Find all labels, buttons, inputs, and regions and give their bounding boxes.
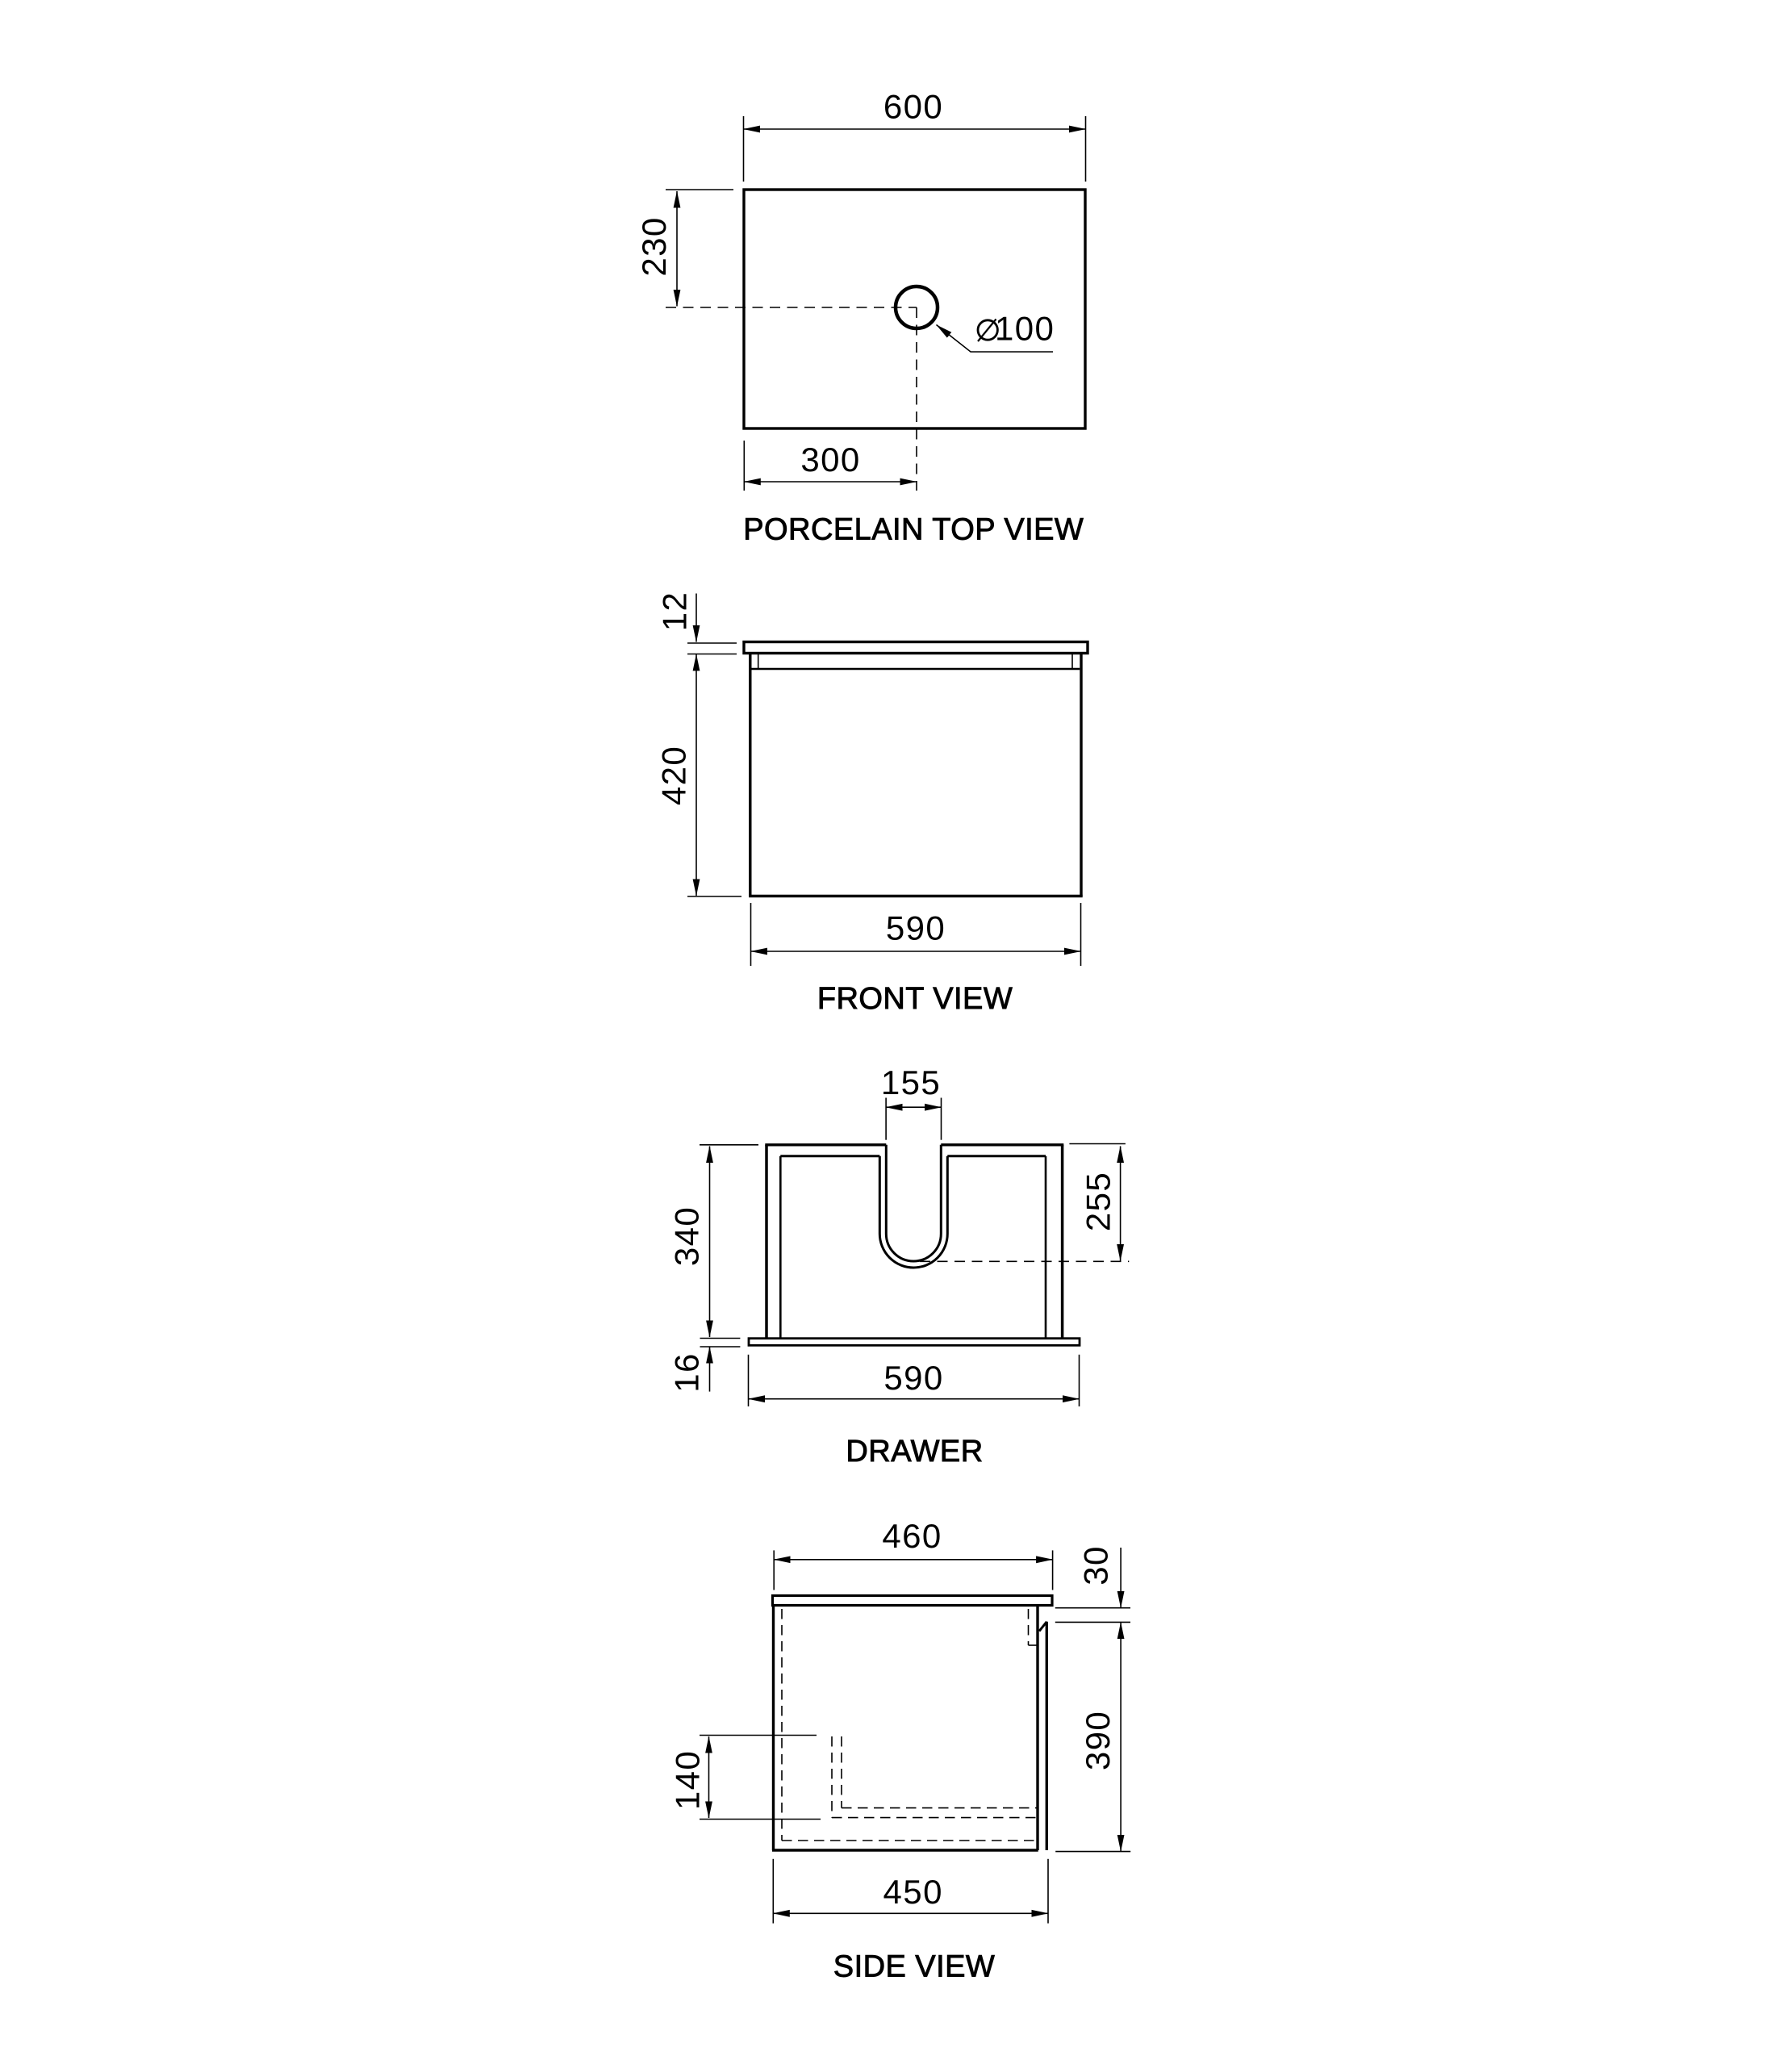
svg-text:140: 140 [668, 1750, 706, 1810]
svg-text:300: 300 [800, 441, 860, 478]
svg-text:SIDE VIEW: SIDE VIEW [833, 1950, 995, 1984]
svg-text:100: 100 [995, 310, 1055, 348]
svg-text:590: 590 [886, 909, 946, 947]
svg-text:450: 450 [883, 1873, 943, 1911]
svg-text:30: 30 [1076, 1545, 1114, 1586]
svg-text:340: 340 [667, 1206, 705, 1266]
svg-text:230: 230 [635, 216, 673, 276]
svg-text:FRONT VIEW: FRONT VIEW [817, 982, 1013, 1016]
svg-text:390: 390 [1079, 1711, 1117, 1770]
svg-text:590: 590 [883, 1359, 943, 1397]
svg-text:255: 255 [1079, 1172, 1117, 1231]
svg-text:PORCELAIN TOP VIEW: PORCELAIN TOP VIEW [743, 513, 1084, 547]
svg-text:460: 460 [882, 1517, 942, 1555]
svg-text:600: 600 [883, 88, 943, 126]
svg-text:16: 16 [667, 1352, 705, 1393]
svg-text:155: 155 [881, 1063, 941, 1101]
svg-text:420: 420 [654, 746, 692, 805]
svg-text:DRAWER: DRAWER [846, 1435, 983, 1469]
svg-text:12: 12 [655, 591, 693, 632]
